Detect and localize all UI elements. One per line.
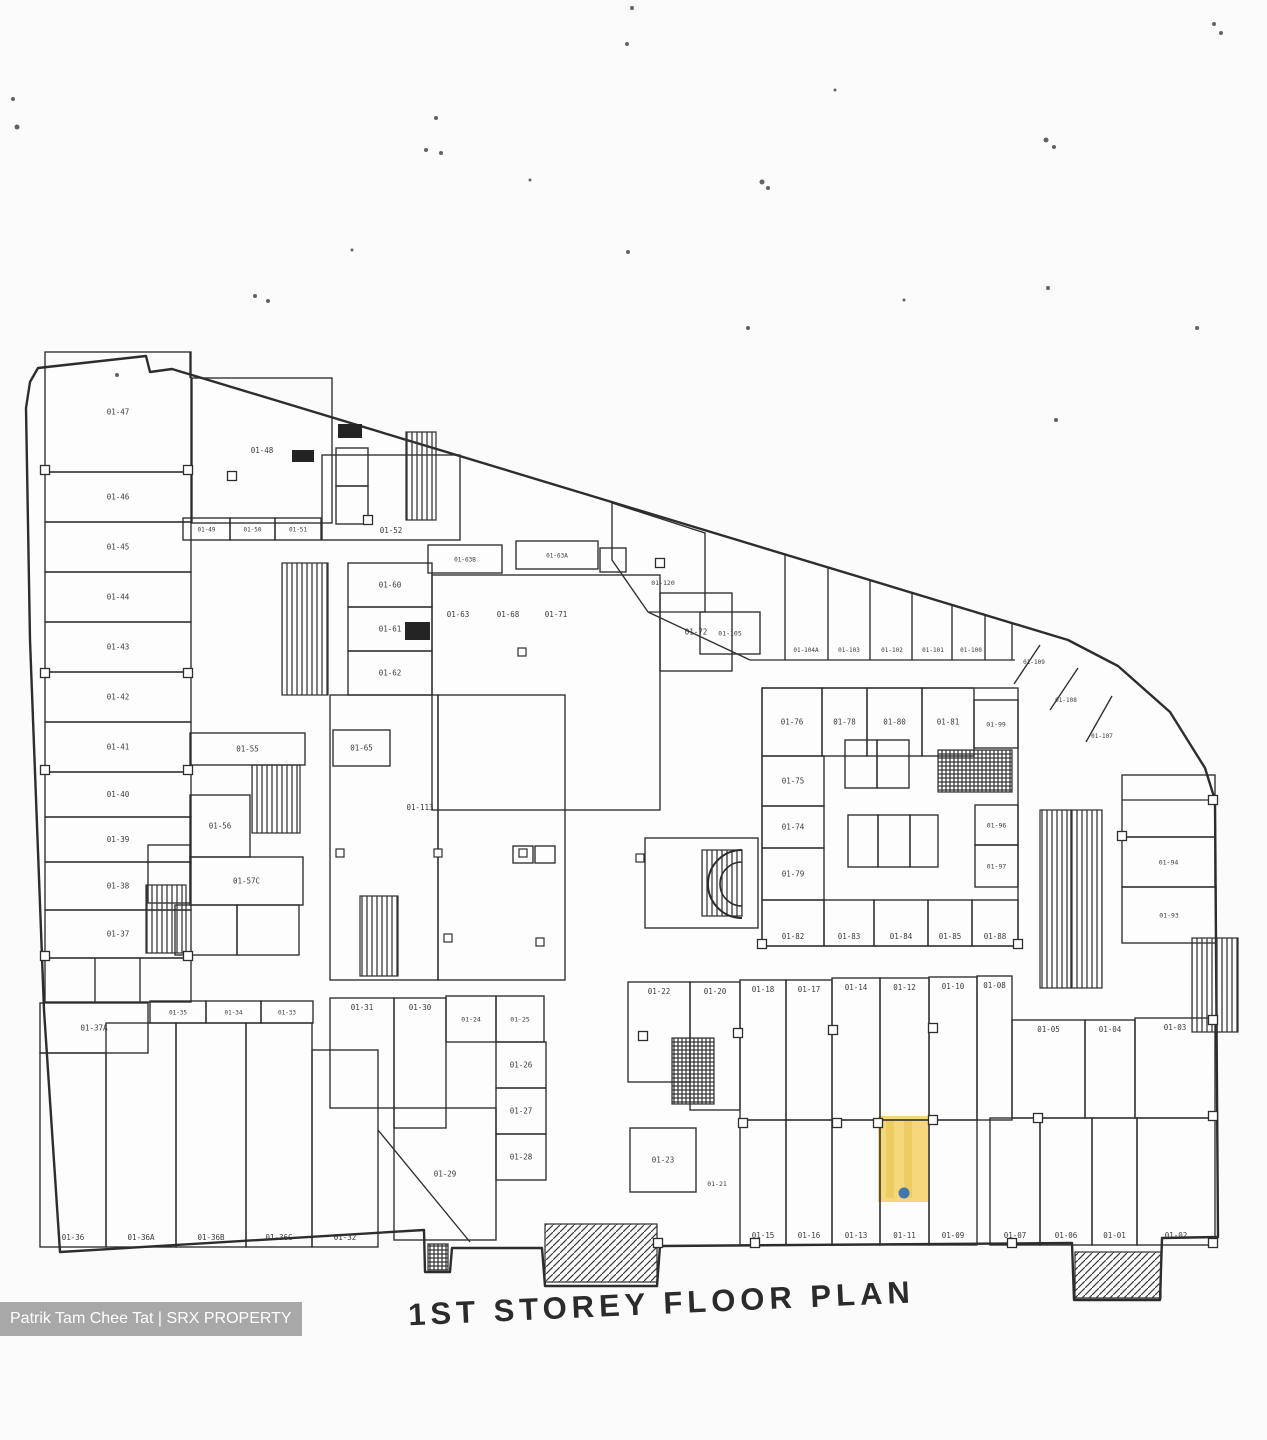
scan-speck (1219, 31, 1223, 35)
unit-label: 01-49 (197, 527, 215, 534)
wall-node (184, 669, 193, 678)
unit-label: 01-81 (937, 718, 960, 727)
ramp-hatch (1075, 1252, 1161, 1298)
unit-label: 01-84 (890, 932, 913, 941)
stair-hatch (672, 1038, 714, 1104)
unit-label: 01-42 (107, 693, 130, 702)
door-mark (519, 849, 527, 857)
unit-label: 01-21 (707, 1180, 727, 1188)
unit-label: 01-60 (379, 581, 402, 590)
escalator-hatch (1071, 810, 1102, 988)
solid-block (292, 450, 314, 462)
wall-node (41, 766, 50, 775)
unit-label: 01-82 (782, 932, 805, 941)
unit-label: 01-108 (1055, 697, 1077, 704)
scan-speck (834, 89, 837, 92)
escalator-hatch (1040, 810, 1071, 988)
scan-speck (1046, 286, 1050, 290)
wall-node (874, 1119, 883, 1128)
wall-node (1014, 940, 1023, 949)
wall-node (1209, 796, 1218, 805)
unit-label: 01-14 (845, 983, 868, 992)
unit-label: 01-62 (379, 669, 402, 678)
escalator-hatch (146, 885, 186, 953)
unit-label: 01-20 (704, 987, 727, 996)
unit-label: 01-79 (782, 870, 805, 879)
unit-label: 01-38 (107, 882, 130, 891)
unit-label: 01-36C (265, 1233, 292, 1242)
unit-label: 01-36 (62, 1233, 85, 1242)
unit-label: 01-36A (127, 1233, 155, 1242)
door-mark (636, 854, 644, 862)
unit-label: 01-08 (983, 981, 1006, 990)
unit-label: 01-113 (406, 803, 433, 812)
unit-label: 01-51 (289, 527, 307, 534)
door-mark (518, 648, 526, 656)
floor-plan-drawing: 01-4701-4601-4501-4401-4301-4201-4101-40… (0, 0, 1267, 1440)
unit-label: 01-13 (845, 1231, 868, 1240)
unit-label: 01-40 (107, 790, 130, 799)
unit-label: 01-57C (233, 877, 260, 886)
wall-node (758, 940, 767, 949)
unit-label: 01-76 (781, 718, 804, 727)
unit-label: 01-03 (1164, 1023, 1187, 1032)
unit-label: 01-102 (881, 647, 903, 654)
unit-label: 01-46 (107, 493, 130, 502)
scan-speck (439, 151, 443, 155)
unit-label: 01-83 (838, 932, 861, 941)
scan-speck (15, 125, 20, 130)
wall-node (1118, 832, 1127, 841)
unit-label: 01-36B (197, 1233, 225, 1242)
unit-label: 01-22 (648, 987, 671, 996)
unit-label: 01-63A (546, 553, 568, 560)
unit-label: 01-37A (80, 1024, 108, 1033)
wall-node (751, 1239, 760, 1248)
scan-speck (115, 373, 119, 377)
escalator-hatch (252, 765, 300, 833)
unit-label: 01-30 (409, 1003, 432, 1012)
solid-block (338, 424, 362, 438)
unit-label: 01-94 (1159, 859, 1179, 867)
escalator-hatch (406, 432, 436, 520)
unit-label: 01-93 (1159, 912, 1179, 920)
door-mark (536, 938, 544, 946)
unit-label: 01-47 (107, 408, 130, 417)
unit-label: 01-109 (1023, 659, 1045, 666)
unit-label: 01-61 (379, 625, 402, 634)
wall-node (639, 1032, 648, 1041)
unit-label: 01-52 (380, 526, 403, 535)
scan-speck (1195, 326, 1199, 330)
wall-node (929, 1116, 938, 1125)
unit-label: 01-41 (107, 743, 130, 752)
unit-label: 01-43 (107, 643, 130, 652)
ramp-hatch (545, 1224, 657, 1282)
unit-label: 01-105 (718, 630, 742, 638)
wall-node (739, 1119, 748, 1128)
unit-label: 01-74 (782, 823, 805, 832)
unit-label: 01-12 (893, 983, 916, 992)
door-mark (434, 849, 442, 857)
unit-label: 01-28 (510, 1153, 533, 1162)
unit-label: 01-85 (939, 932, 962, 941)
wall-node (228, 472, 237, 481)
wall-node (41, 466, 50, 475)
unit-label: 01-05 (1037, 1025, 1060, 1034)
unit-label: 01-06 (1055, 1231, 1078, 1240)
scan-speck (1212, 22, 1216, 26)
unit-label: 01-02 (1165, 1231, 1188, 1240)
scan-speck (903, 299, 906, 302)
scan-speck (424, 148, 428, 152)
unit-label: 01-25 (510, 1016, 530, 1024)
wall-node (654, 1239, 663, 1248)
wall-node (1034, 1114, 1043, 1123)
watermark: Patrik Tam Chee Tat | SRX PROPERTY (0, 1302, 302, 1336)
unit-label: 01-01 (1103, 1231, 1126, 1240)
scan-speck (766, 186, 770, 190)
unit-label: 01-11 (893, 1231, 916, 1240)
unit-label: 01-45 (107, 543, 130, 552)
wall-node (184, 466, 193, 475)
location-marker (899, 1188, 910, 1199)
unit-label: 01-65 (350, 744, 373, 753)
unit-label: 01-63B (454, 557, 476, 564)
unit-label: 01-120 (651, 579, 675, 587)
wall-node (41, 669, 50, 678)
scan-speck (1054, 418, 1058, 422)
unit-label: 01-27 (510, 1107, 533, 1116)
unit-label: 01-97 (987, 863, 1007, 871)
unit-label: 01-34 (224, 1010, 242, 1017)
unit-label: 01-04 (1099, 1025, 1122, 1034)
scan-speck (529, 179, 532, 182)
unit-label: 01-26 (510, 1061, 533, 1070)
unit-label: 01-39 (107, 835, 130, 844)
unit-label: 01-33 (278, 1010, 296, 1017)
wall-node (734, 1029, 743, 1038)
wall-node (829, 1026, 838, 1035)
wall-node (1209, 1016, 1218, 1025)
unit-label: 01-104A (793, 647, 819, 654)
unit-label: 01-09 (942, 1231, 965, 1240)
unit-label: 01-37 (107, 930, 130, 939)
unit-label: 01-10 (942, 982, 965, 991)
scan-speck (746, 326, 750, 330)
door-mark (336, 849, 344, 857)
unit-label: 01-18 (752, 985, 775, 994)
unit-label: 01-71 (545, 610, 568, 619)
wall-node (833, 1119, 842, 1128)
wall-node (1209, 1239, 1218, 1248)
stair-hatch (428, 1244, 448, 1270)
floor-plan-page: 01-4701-4601-4501-4401-4301-4201-4101-40… (0, 0, 1267, 1440)
unit-label: 01-50 (243, 527, 261, 534)
unit-label: 01-56 (209, 822, 232, 831)
wall-node (184, 766, 193, 775)
solid-block (405, 622, 430, 640)
wall-node (1209, 1112, 1218, 1121)
door-mark (444, 934, 452, 942)
unit-label: 01-63 (447, 610, 470, 619)
unit-label: 01-32 (334, 1233, 357, 1242)
scan-speck (630, 6, 634, 10)
unit-label: 01-16 (798, 1231, 821, 1240)
highlight-stripe (886, 1120, 894, 1198)
unit-label: 01-44 (107, 593, 130, 602)
scan-speck (1044, 138, 1049, 143)
unit-label: 01-101 (922, 647, 944, 654)
unit-label: 01-24 (461, 1016, 481, 1024)
unit-label: 01-103 (838, 647, 860, 654)
unit-label: 01-17 (798, 985, 821, 994)
scan-speck (266, 299, 270, 303)
wall-node (364, 516, 373, 525)
unit-label: 01-35 (169, 1010, 187, 1017)
scan-speck (351, 249, 354, 252)
unit-label: 01-107 (1091, 733, 1113, 740)
building-outline (26, 356, 1218, 1300)
scan-speck (1052, 145, 1056, 149)
unit-label: 01-48 (251, 446, 274, 455)
unit-label: 01-75 (782, 777, 805, 786)
unit-label: 01-78 (833, 718, 856, 727)
unit-label: 01-55 (236, 745, 259, 754)
highlight-stripe (904, 1120, 912, 1198)
unit-label: 01-23 (652, 1156, 675, 1165)
scan-speck (434, 116, 438, 120)
escalator-hatch (360, 896, 398, 976)
scan-speck (625, 42, 629, 46)
unit-label: 01-29 (434, 1170, 457, 1179)
wall-node (184, 952, 193, 961)
unit-label: 01-68 (497, 610, 520, 619)
stair-hatch (938, 750, 1012, 792)
scan-speck (760, 180, 765, 185)
wall-node (41, 952, 50, 961)
unit-label: 01-31 (351, 1003, 374, 1012)
wall-node (929, 1024, 938, 1033)
unit-label: 01-100 (960, 647, 982, 654)
scan-speck (253, 294, 257, 298)
scan-speck (626, 250, 630, 254)
unit-label: 01-96 (987, 822, 1007, 830)
escalator-hatch (282, 563, 328, 695)
scan-speck (11, 97, 15, 101)
unit-label: 01-88 (984, 932, 1007, 941)
unit-label: 01-99 (986, 721, 1006, 729)
unit-label: 01-80 (883, 718, 906, 727)
wall-node (1008, 1239, 1017, 1248)
wall-node (656, 559, 665, 568)
